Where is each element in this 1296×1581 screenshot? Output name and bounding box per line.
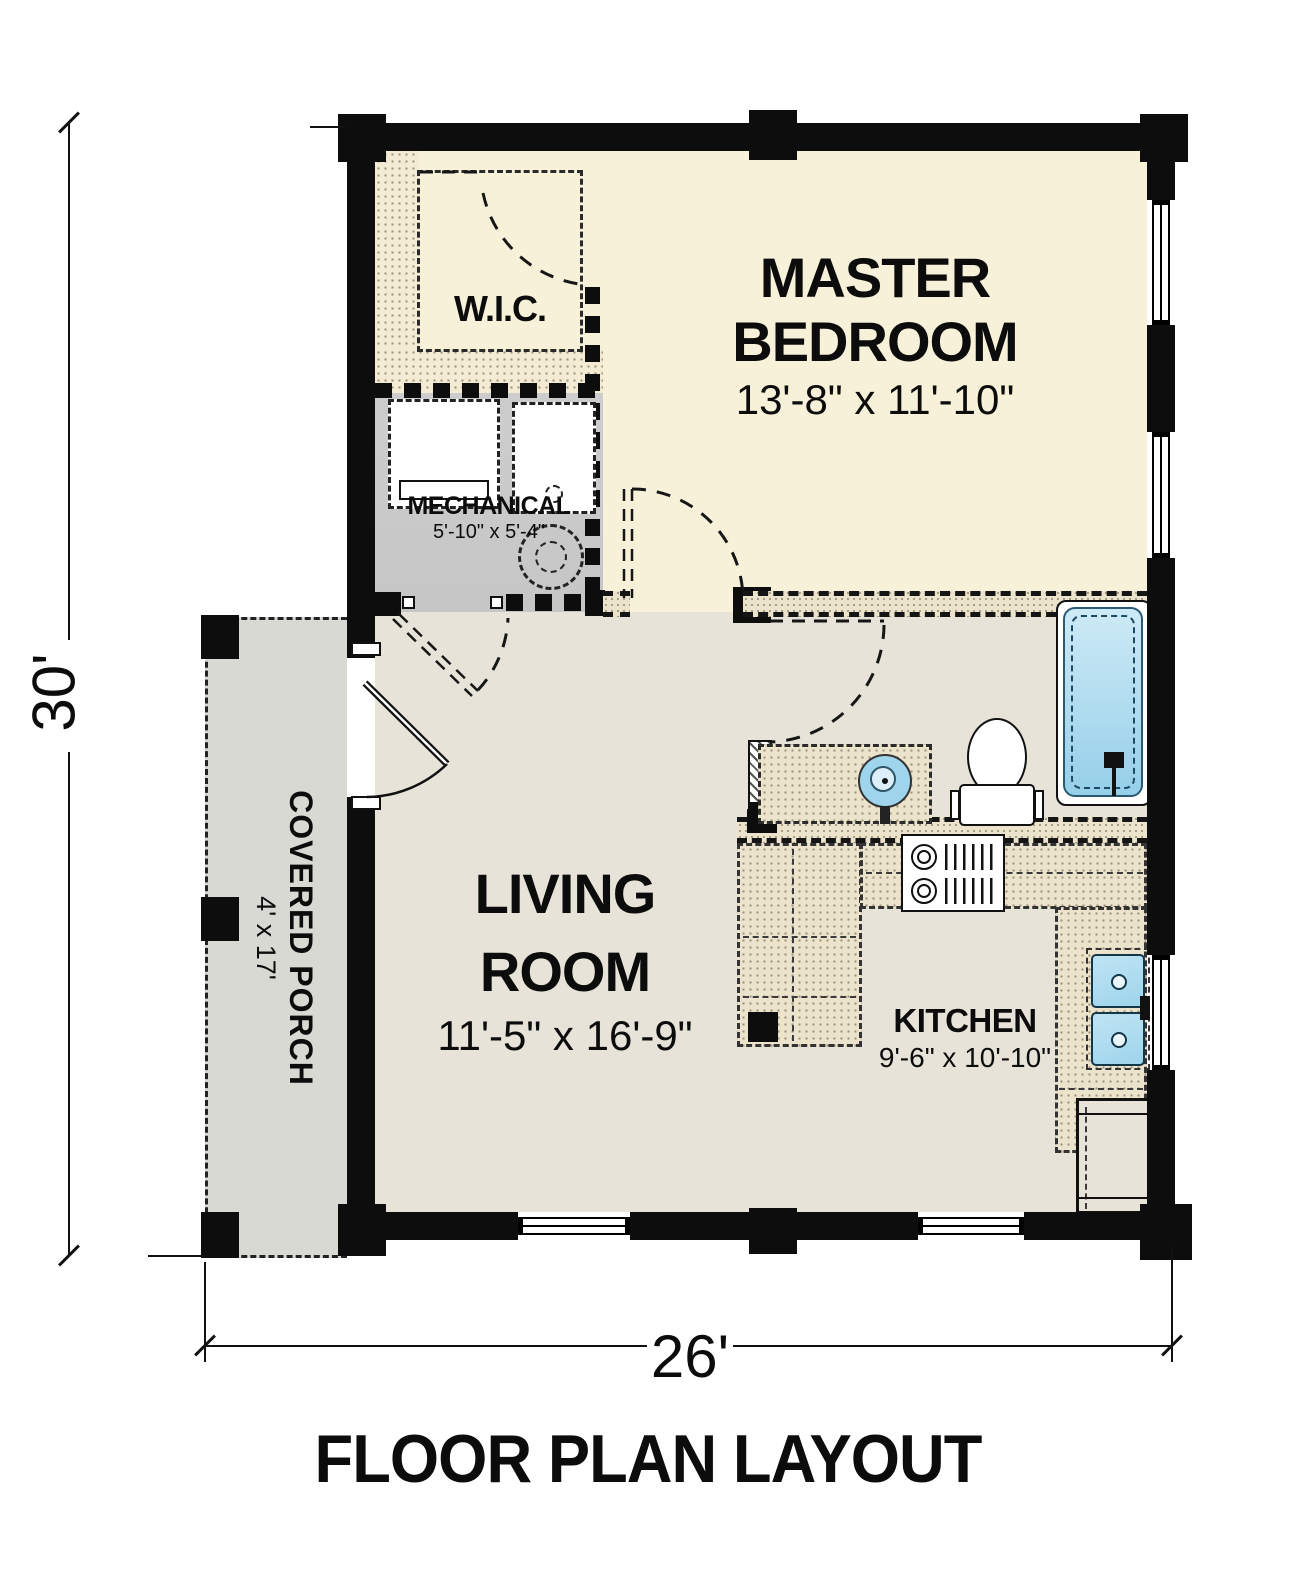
room-name-line: MASTER (603, 246, 1147, 310)
kitchen-label: KITCHEN 9'-6" x 10'-10" (792, 1002, 1138, 1074)
entry-door-jamb (351, 796, 381, 810)
width-dimension-line (733, 1345, 1172, 1347)
kitchen-faucet-icon (1140, 996, 1150, 1020)
refrigerator-shelf-line (1079, 1113, 1147, 1115)
extension-line (1171, 1246, 1173, 1362)
stove-icon (901, 834, 1005, 912)
kitchen-sink-basin (1091, 954, 1145, 1008)
room-name-line: KITCHEN (792, 1002, 1138, 1040)
window-icon (518, 1217, 630, 1235)
refrigerator-icon (1076, 1098, 1150, 1214)
room-name-line: MECHANICAL (375, 492, 603, 521)
master-bedroom-label: MASTER BEDROOM 13'-8" x 11'-10" (603, 246, 1147, 424)
mechanical-label: MECHANICAL 5'-10" x 5'-4" (375, 492, 603, 543)
bathtub-inner-dashed (1071, 615, 1135, 789)
extension-line (310, 126, 346, 128)
exterior-wall-right (1147, 558, 1175, 955)
bathroom-faucet-icon (880, 806, 890, 824)
porch-post (201, 897, 239, 941)
height-dimension-line (68, 123, 70, 640)
mechanical-door-jamb (402, 596, 415, 609)
toilet-tank-nub (950, 790, 960, 820)
mechanical-door-post-left (375, 592, 401, 616)
toilet-tank (959, 784, 1035, 826)
mechanical-corner-post (585, 590, 605, 616)
exterior-wall-left (347, 123, 375, 658)
toilet-tank-nub (1034, 790, 1044, 820)
cabinet-division (1059, 1088, 1143, 1090)
room-size: 4' x 17' (250, 658, 281, 1218)
refrigerator-shelf-line (1079, 1197, 1147, 1199)
refrigerator-door-dash (1085, 1107, 1087, 1209)
room-name-line: W.I.C. (417, 288, 583, 329)
window-icon (1152, 200, 1170, 325)
bedroom-divider-wall (603, 591, 630, 617)
window-icon (1152, 955, 1170, 1070)
room-name-line: COVERED PORCH (283, 658, 319, 1218)
cabinet-division (743, 996, 856, 998)
mechanical-door-jamb (490, 596, 503, 609)
room-size: 5'-10" x 5'-4" (375, 521, 603, 544)
water-heater-inner (535, 541, 567, 573)
room-name-line: BEDROOM (603, 310, 1147, 374)
bathtub-icon (1056, 600, 1152, 806)
bathroom-sink-icon (858, 754, 912, 808)
height-dimension-label: 30' (20, 651, 89, 735)
corner-post (1140, 1204, 1192, 1260)
page-title: FLOOR PLAN LAYOUT (45, 1420, 1250, 1498)
bathtub-drain-stem (1112, 768, 1116, 796)
kitchen-island-post (748, 1012, 778, 1042)
porch-post (201, 1212, 239, 1258)
room-name-line: ROOM (383, 940, 747, 1004)
room-size: 13'-8" x 11'-10" (603, 376, 1147, 424)
exterior-wall-left (347, 797, 375, 1240)
window-icon (918, 1217, 1024, 1235)
window-icon (1152, 432, 1170, 558)
living-room-label: LIVING ROOM 11'-5" x 16'-9" (383, 862, 747, 1060)
stove-grate (945, 878, 999, 904)
room-name-line: LIVING (383, 862, 747, 926)
corner-post (1140, 114, 1188, 162)
width-dimension-line (205, 1345, 647, 1347)
bathtub-faucet-icon (1104, 752, 1124, 768)
wic-label: W.I.C. (417, 288, 583, 329)
top-center-post (749, 110, 797, 160)
cabinet-division (743, 936, 856, 938)
extension-line (148, 1255, 204, 1257)
mechanical-top-wall (375, 383, 603, 398)
stove-grate (945, 844, 999, 870)
extension-line (204, 1262, 206, 1362)
stove-burner-icon (911, 878, 937, 904)
entry-door-jamb (351, 642, 381, 656)
exterior-wall-right (1147, 325, 1175, 432)
corner-post (338, 114, 386, 162)
bathroom-sink-drain (882, 778, 888, 784)
bottom-center-post (749, 1208, 797, 1254)
height-dimension-line (68, 752, 70, 1256)
floor-plan: MASTER BEDROOM 13'-8" x 11'-10" W.I.C. M… (0, 0, 1296, 1581)
stove-burner-icon (911, 844, 937, 870)
room-size: 9'-6" x 10'-10" (792, 1042, 1138, 1074)
width-dimension-label: 26' (640, 1322, 740, 1391)
porch-post (201, 615, 239, 659)
room-size: 11'-5" x 16'-9" (383, 1012, 747, 1060)
corner-post (338, 1204, 386, 1256)
covered-porch-label: COVERED PORCH 4' x 17' (235, 658, 319, 1218)
